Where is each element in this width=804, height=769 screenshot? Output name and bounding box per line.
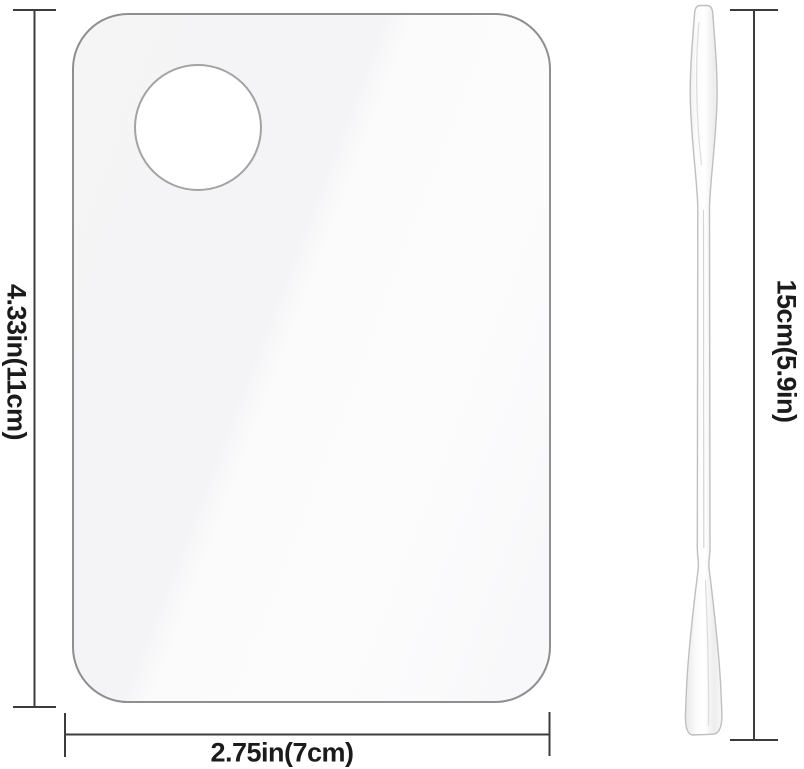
palette-width-label: 2.75in(7cm) xyxy=(210,740,353,767)
palette-height-label: 4.33in(11cm) xyxy=(3,284,30,440)
diagram-overlay xyxy=(0,0,804,769)
product-dimension-diagram: 4.33in(11cm) 2.75in(7cm) 15cm(5.9in) xyxy=(0,0,804,769)
spatula-length-label: 15cm(5.9in) xyxy=(773,279,800,422)
spatula-tool xyxy=(685,6,722,736)
